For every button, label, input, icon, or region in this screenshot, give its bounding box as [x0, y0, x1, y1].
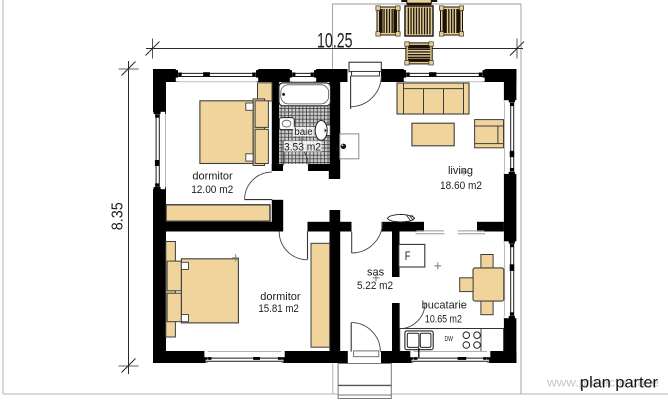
svg-text:dormitor: dormitor [260, 291, 301, 303]
svg-text:dormitor: dormitor [192, 171, 233, 183]
svg-text:F: F [405, 251, 411, 263]
svg-text:12.00 m2: 12.00 m2 [191, 184, 233, 196]
svg-text:15.81 m2: 15.81 m2 [258, 303, 299, 315]
svg-text:10.25: 10.25 [317, 30, 353, 53]
svg-text:baie: baie [294, 127, 313, 138]
svg-text:plan parter: plan parter [580, 374, 659, 391]
svg-text:sas: sas [367, 267, 385, 279]
svg-text:10.65 m2: 10.65 m2 [425, 313, 462, 325]
svg-text:5.22 m2: 5.22 m2 [357, 280, 393, 292]
svg-text:18.60 m2: 18.60 m2 [440, 180, 482, 192]
svg-text:bucatarie: bucatarie [422, 300, 467, 312]
svg-text:living: living [448, 165, 473, 177]
svg-text:3.53 m2: 3.53 m2 [284, 142, 321, 154]
svg-text:8.35: 8.35 [109, 202, 126, 230]
svg-text:DW: DW [445, 334, 454, 343]
